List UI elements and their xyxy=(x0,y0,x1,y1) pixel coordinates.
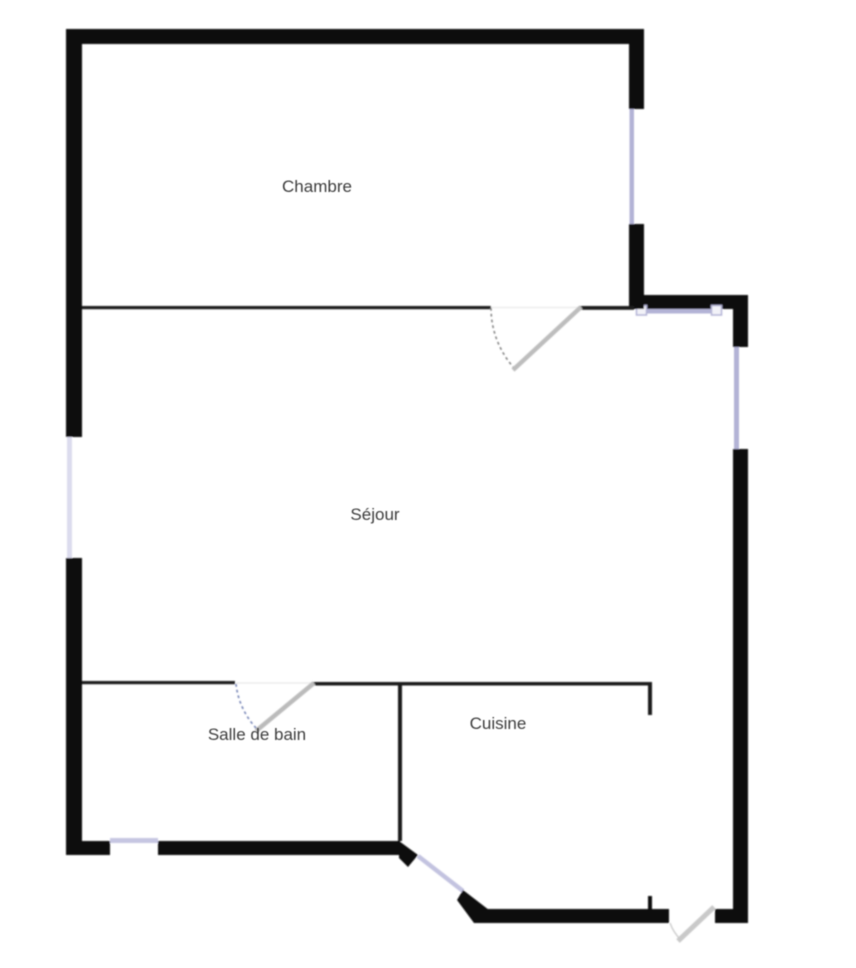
svg-text:Chambre: Chambre xyxy=(282,177,352,196)
svg-text:Cuisine: Cuisine xyxy=(470,714,527,733)
svg-text:Séjour: Séjour xyxy=(350,505,399,524)
svg-text:Salle de bain: Salle de bain xyxy=(208,725,306,744)
